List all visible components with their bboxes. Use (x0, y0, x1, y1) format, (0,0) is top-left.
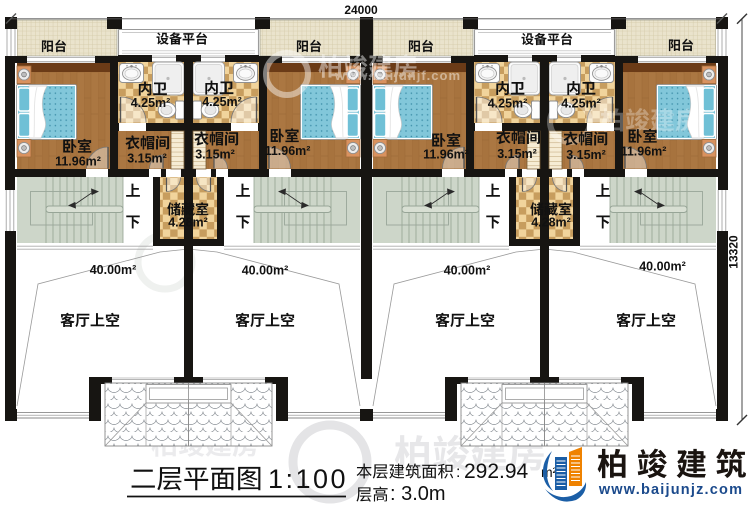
svg-text:40.00m²: 40.00m² (639, 260, 686, 274)
svg-text::: : (456, 464, 460, 481)
svg-text:40.00m²: 40.00m² (90, 263, 137, 277)
svg-text:4.25m²: 4.25m² (561, 97, 601, 111)
svg-text:292.94: 292.94 (464, 460, 529, 483)
svg-text:1:100: 1:100 (268, 464, 348, 494)
svg-text:4.25m²: 4.25m² (202, 95, 242, 109)
svg-text:www.baijunjz.com: www.baijunjz.com (598, 482, 743, 498)
svg-text:11.96m²: 11.96m² (621, 145, 667, 159)
svg-text:24000: 24000 (344, 3, 378, 17)
svg-text:4.25m²: 4.25m² (131, 96, 171, 110)
svg-text:4.28m²: 4.28m² (531, 216, 571, 230)
svg-text:: 3.0m: : 3.0m (390, 483, 446, 505)
svg-text:11.96m²: 11.96m² (55, 155, 101, 169)
svg-text:www.baijunjf.com: www.baijunjf.com (334, 68, 461, 83)
svg-text:40.00m²: 40.00m² (242, 264, 289, 278)
svg-text:3.15m²: 3.15m² (497, 147, 537, 161)
svg-text:11.96m²: 11.96m² (265, 144, 311, 158)
svg-text:3.15m²: 3.15m² (566, 148, 606, 162)
svg-text:13320: 13320 (727, 235, 741, 269)
svg-text:4.25m²: 4.25m² (488, 97, 528, 111)
svg-text:11.96m²: 11.96m² (423, 148, 469, 162)
svg-text:3.15m²: 3.15m² (127, 152, 167, 166)
svg-text:40.00m²: 40.00m² (444, 264, 491, 278)
svg-text:3.15m²: 3.15m² (195, 148, 235, 162)
svg-text:4.28m²: 4.28m² (168, 216, 208, 230)
